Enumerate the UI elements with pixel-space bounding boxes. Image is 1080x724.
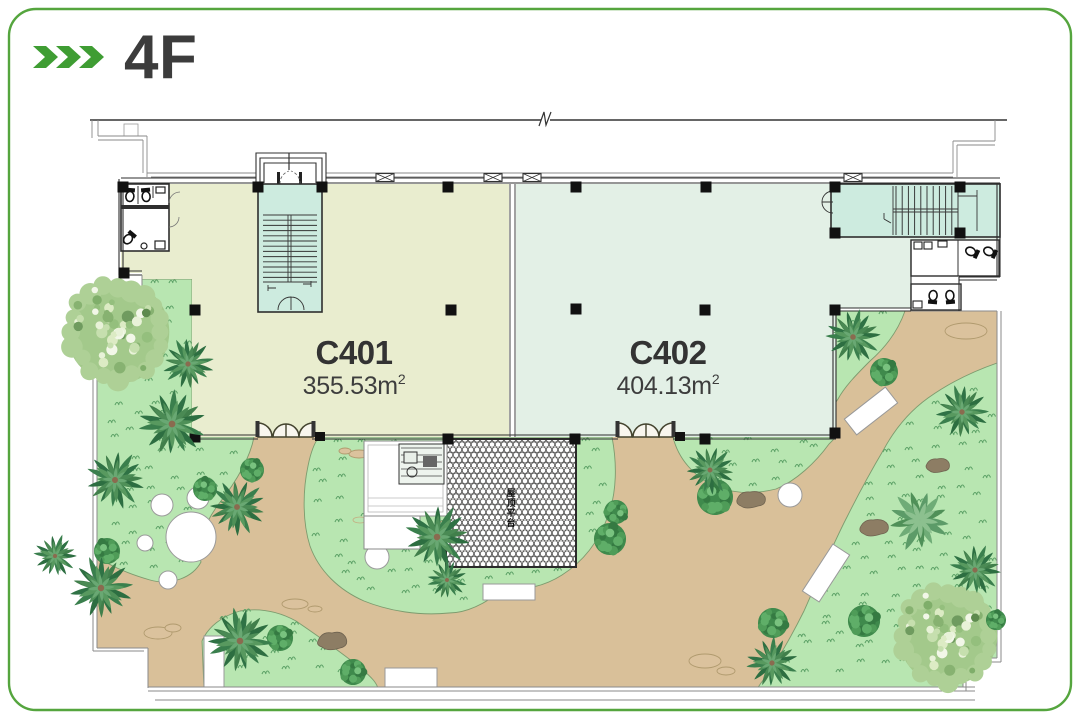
svg-text:平: 平 [506,508,515,518]
svg-text:404.13m2: 404.13m2 [617,371,720,400]
svg-text:台: 台 [506,517,515,528]
svg-text:355.53m2: 355.53m2 [303,371,406,400]
svg-text:C401: C401 [316,334,393,371]
svg-text:C402: C402 [630,334,707,371]
svg-text:4F: 4F [124,23,197,92]
svg-text:顶: 顶 [506,498,515,508]
svg-text:屋: 屋 [506,488,515,498]
